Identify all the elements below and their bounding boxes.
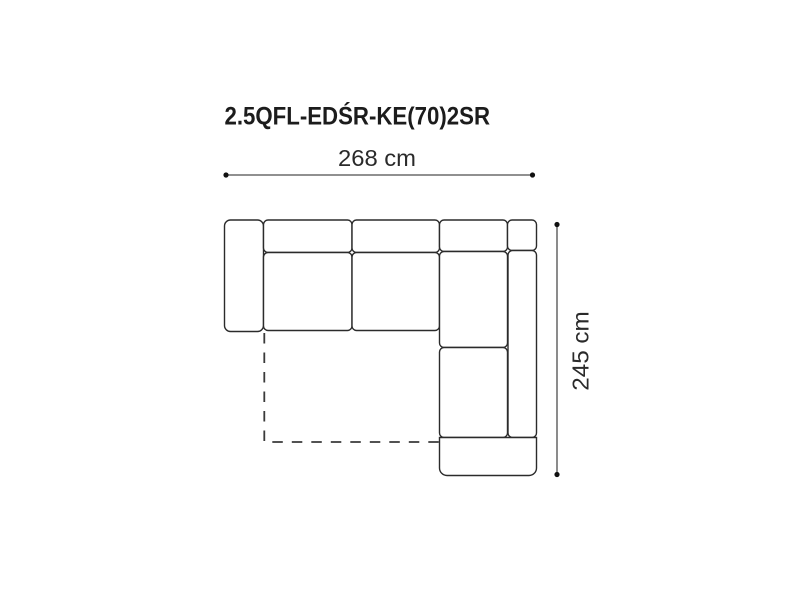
svg-text:2.5QFL-EDŚR-KE(70)2SR: 2.5QFL-EDŚR-KE(70)2SR	[225, 101, 491, 131]
svg-text:268 cm: 268 cm	[338, 145, 416, 171]
svg-text:245 cm: 245 cm	[568, 311, 594, 391]
